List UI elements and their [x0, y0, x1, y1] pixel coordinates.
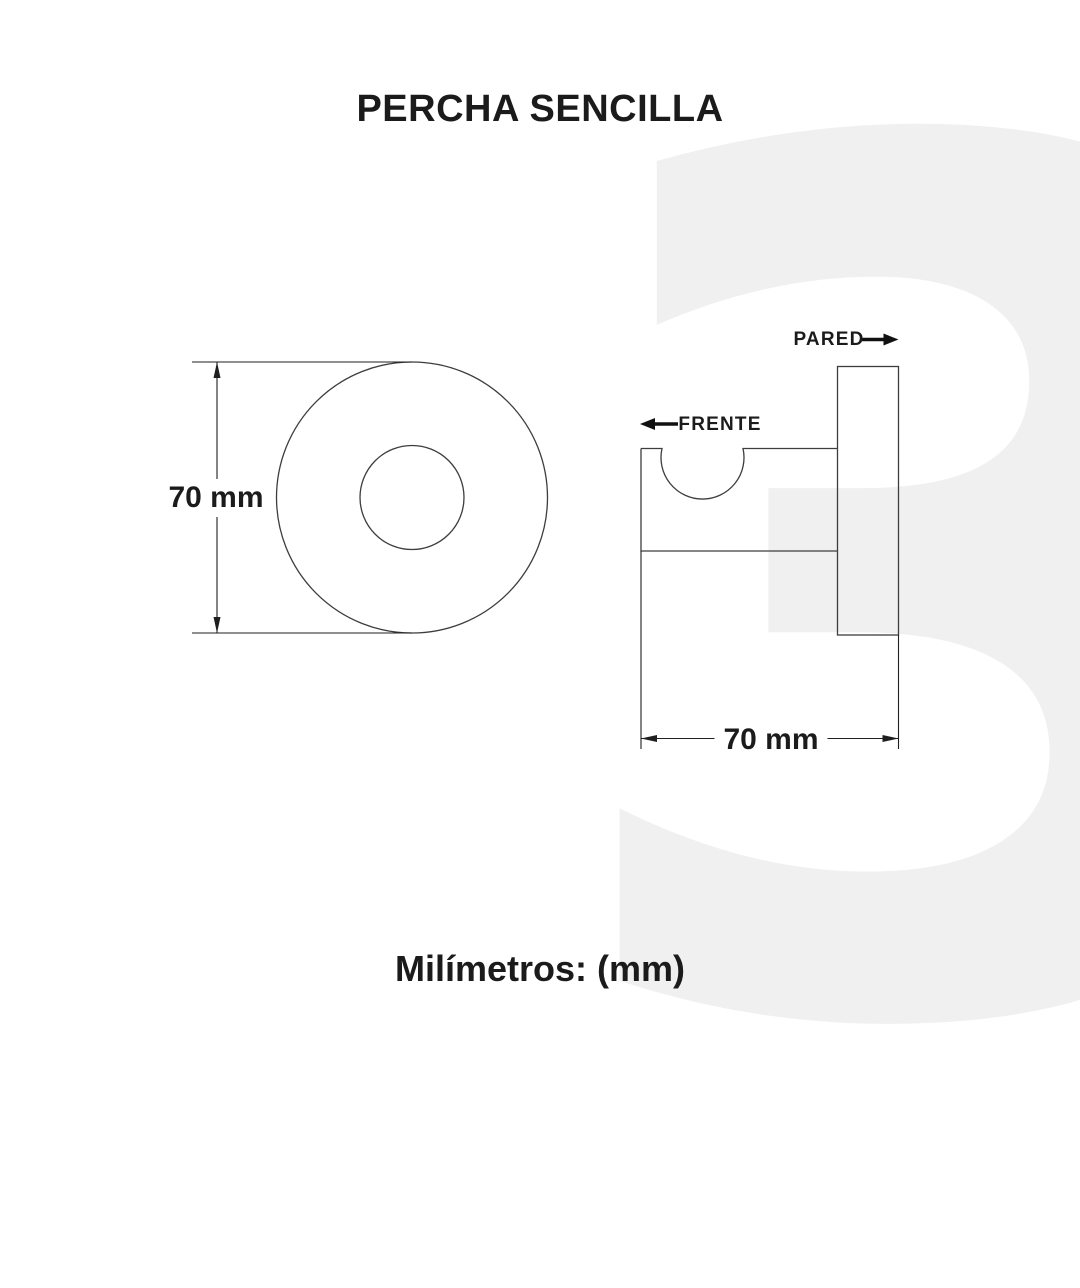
front-outer-circle	[277, 362, 548, 633]
technical-drawing	[0, 0, 1080, 1080]
frente-label: FRENTE	[678, 414, 761, 436]
front-dimension-arrow-down-icon	[214, 617, 221, 633]
pared-arrow-icon	[884, 334, 899, 346]
side-view-dimension-label: 70 mm	[714, 721, 827, 759]
front-inner-circle	[360, 446, 464, 550]
front-view-dimension-label: 70 mm	[159, 479, 272, 517]
front-dimension-arrow-up-icon	[214, 362, 221, 378]
pared-label: PARED	[793, 329, 864, 351]
side-dimension-arrow-left-icon	[641, 735, 657, 742]
side-wall-plate	[838, 367, 899, 636]
diagram-page: { "page": { "title": "PERCHA SENCILLA", …	[0, 0, 1080, 1080]
frente-arrow-icon	[640, 418, 655, 430]
side-dimension-arrow-right-icon	[883, 735, 899, 742]
page-title: PERCHA SENCILLA	[0, 88, 1080, 131]
side-hook-profile	[641, 449, 838, 552]
units-note: Milímetros: (mm)	[0, 948, 1080, 990]
side-view	[640, 334, 899, 750]
